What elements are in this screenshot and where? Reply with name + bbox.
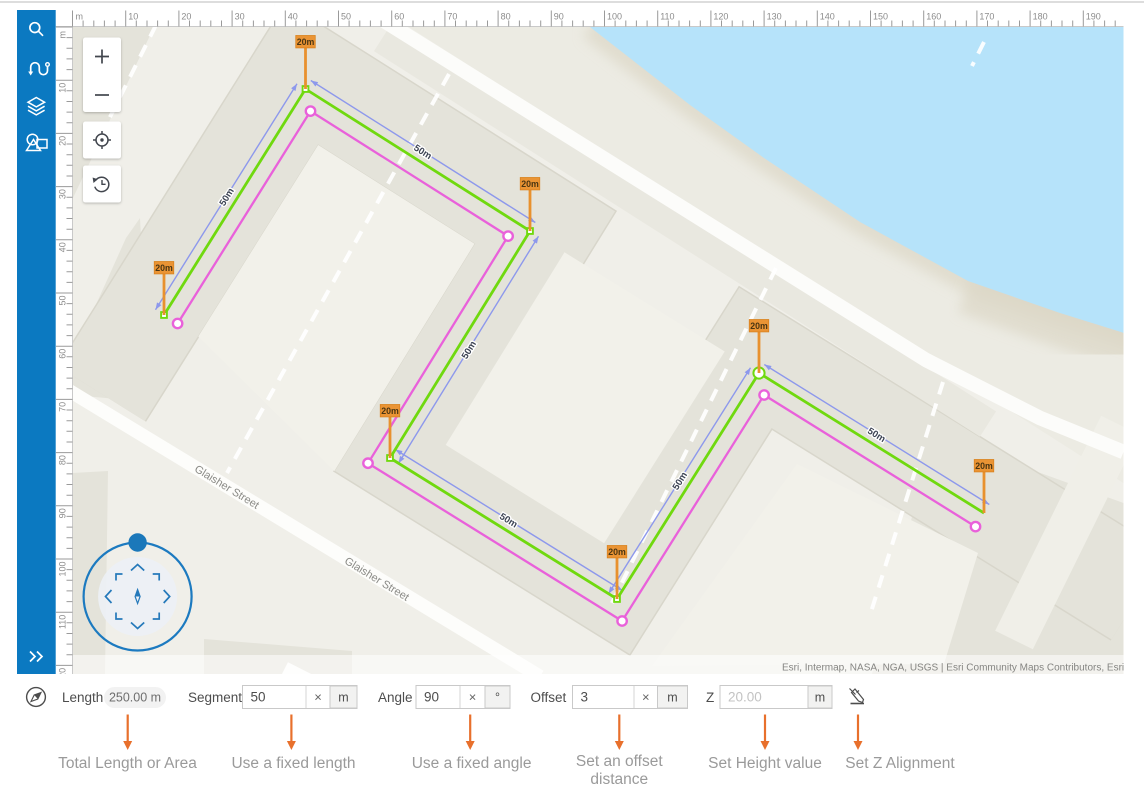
svg-text:Use a fixed angle: Use a fixed angle <box>412 755 532 772</box>
svg-text:20m: 20m <box>975 461 993 471</box>
svg-text:50: 50 <box>341 12 351 22</box>
svg-text:3: 3 <box>581 690 589 705</box>
svg-text:70: 70 <box>58 402 68 412</box>
svg-text:°: ° <box>495 691 500 705</box>
svg-text:120: 120 <box>713 12 728 22</box>
svg-text:Set an offset: Set an offset <box>576 753 663 770</box>
svg-text:100: 100 <box>58 562 68 577</box>
svg-text:m: m <box>58 31 68 39</box>
svg-text:60: 60 <box>58 349 68 359</box>
svg-text:m: m <box>76 12 84 22</box>
svg-text:20m: 20m <box>155 263 173 273</box>
svg-text:40: 40 <box>58 242 68 252</box>
svg-text:Set Z Alignment: Set Z Alignment <box>845 755 955 772</box>
svg-text:160: 160 <box>926 12 941 22</box>
svg-text:×: × <box>314 690 322 705</box>
svg-text:Segment: Segment <box>188 690 242 705</box>
svg-text:50: 50 <box>251 690 266 705</box>
svg-text:×: × <box>642 690 650 705</box>
svg-text:80: 80 <box>501 12 511 22</box>
svg-text:Z: Z <box>706 690 714 705</box>
svg-text:10: 10 <box>58 83 68 93</box>
svg-text:140: 140 <box>820 12 835 22</box>
svg-text:20: 20 <box>181 12 191 22</box>
svg-text:Offset: Offset <box>531 690 567 705</box>
svg-text:250.00 m: 250.00 m <box>109 691 161 705</box>
svg-text:×: × <box>469 690 477 705</box>
svg-text:30: 30 <box>58 189 68 199</box>
svg-text:170: 170 <box>979 12 994 22</box>
svg-text:40: 40 <box>288 12 298 22</box>
svg-text:70: 70 <box>447 12 457 22</box>
svg-text:180: 180 <box>1033 12 1048 22</box>
svg-text:m: m <box>815 691 825 705</box>
svg-text:30: 30 <box>235 12 245 22</box>
svg-text:90: 90 <box>58 508 68 518</box>
svg-text:190: 190 <box>1086 12 1101 22</box>
svg-text:Angle: Angle <box>378 690 413 705</box>
svg-text:110: 110 <box>58 615 68 629</box>
svg-text:Length: Length <box>62 690 103 705</box>
svg-text:150: 150 <box>873 12 888 22</box>
svg-text:Esri, Intermap, NASA, NGA, USG: Esri, Intermap, NASA, NGA, USGS | Esri C… <box>782 663 1134 674</box>
svg-text:distance: distance <box>590 771 648 788</box>
svg-text:Use a fixed length: Use a fixed length <box>231 755 355 772</box>
svg-text:80: 80 <box>58 455 68 465</box>
svg-text:Total Length or Area: Total Length or Area <box>58 755 197 772</box>
svg-text:m: m <box>667 691 677 705</box>
svg-text:100: 100 <box>607 12 622 22</box>
svg-text:90: 90 <box>554 12 564 22</box>
svg-text:20m: 20m <box>521 179 539 189</box>
svg-text:130: 130 <box>767 12 782 22</box>
svg-text:Set Height value: Set Height value <box>708 755 822 772</box>
svg-text:10: 10 <box>128 12 138 22</box>
svg-text:20.00: 20.00 <box>728 690 762 705</box>
svg-text:20m: 20m <box>381 406 399 416</box>
svg-text:90: 90 <box>424 690 439 705</box>
svg-text:110: 110 <box>660 12 674 22</box>
svg-text:m: m <box>338 691 348 705</box>
svg-text:20: 20 <box>58 136 68 146</box>
svg-text:50: 50 <box>58 296 68 306</box>
svg-text:20m: 20m <box>297 37 315 47</box>
svg-text:20m: 20m <box>750 321 768 331</box>
svg-text:20m: 20m <box>608 547 626 557</box>
svg-text:60: 60 <box>394 12 404 22</box>
